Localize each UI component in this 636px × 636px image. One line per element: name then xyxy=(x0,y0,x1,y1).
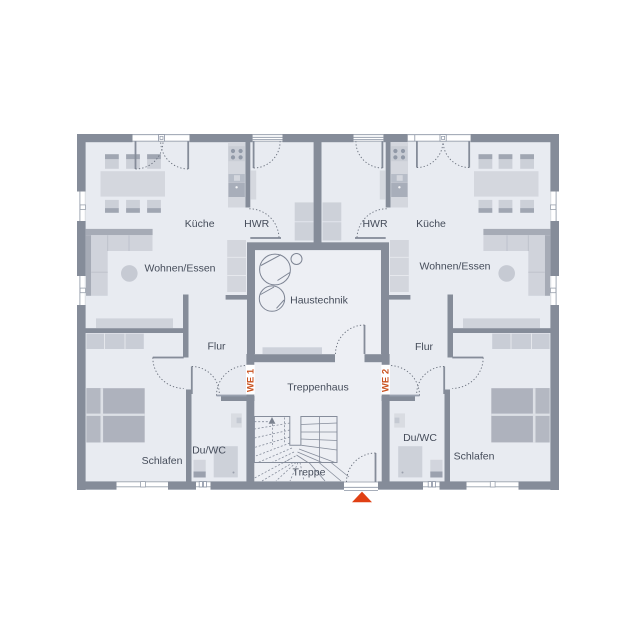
svg-text:Flur: Flur xyxy=(415,341,434,353)
svg-text:Küche: Küche xyxy=(185,218,215,230)
svg-text:Du/WC: Du/WC xyxy=(192,445,226,457)
svg-text:HWR: HWR xyxy=(244,218,269,230)
svg-text:WE 1: WE 1 xyxy=(245,368,256,392)
svg-text:Treppe: Treppe xyxy=(293,467,326,479)
svg-text:Schlafen: Schlafen xyxy=(142,455,183,467)
svg-text:Treppenhaus: Treppenhaus xyxy=(287,382,349,394)
svg-text:Wohnen/Essen: Wohnen/Essen xyxy=(419,261,490,273)
svg-text:HWR: HWR xyxy=(362,218,387,230)
svg-text:Flur: Flur xyxy=(207,341,226,353)
svg-text:Haustechnik: Haustechnik xyxy=(290,294,349,306)
svg-text:Schlafen: Schlafen xyxy=(454,451,495,463)
svg-text:Du/WC: Du/WC xyxy=(403,432,437,444)
svg-text:Wohnen/Essen: Wohnen/Essen xyxy=(144,262,215,274)
svg-text:Küche: Küche xyxy=(416,218,446,230)
svg-text:WE 2: WE 2 xyxy=(381,369,392,392)
